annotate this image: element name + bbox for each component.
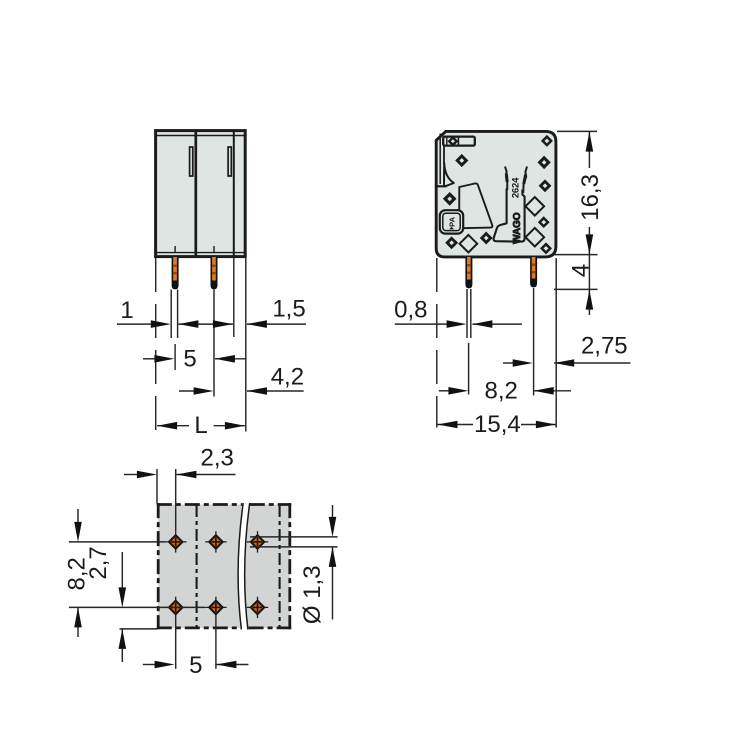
- svg-text:0,8: 0,8: [394, 296, 427, 323]
- svg-text:2624: 2624: [511, 177, 522, 198]
- svg-text:16,3: 16,3: [577, 174, 604, 221]
- svg-text:5: 5: [183, 346, 196, 373]
- svg-text:1,5: 1,5: [272, 296, 305, 323]
- svg-text:2,7: 2,7: [85, 546, 112, 579]
- svg-text:5: 5: [189, 652, 202, 679]
- svg-text:1: 1: [120, 297, 133, 324]
- svg-text:8,2: 8,2: [485, 377, 518, 404]
- svg-text:L: L: [194, 412, 207, 439]
- svg-text:2,3: 2,3: [201, 445, 234, 472]
- svg-text:2,75: 2,75: [581, 333, 628, 360]
- svg-text:Ø 1,3: Ø 1,3: [299, 565, 326, 624]
- svg-text:WAGO: WAGO: [512, 212, 523, 244]
- svg-text:4,2: 4,2: [271, 364, 304, 391]
- svg-text:PA: PA: [448, 216, 457, 226]
- svg-text:4: 4: [568, 264, 595, 277]
- svg-text:15,4: 15,4: [474, 411, 521, 438]
